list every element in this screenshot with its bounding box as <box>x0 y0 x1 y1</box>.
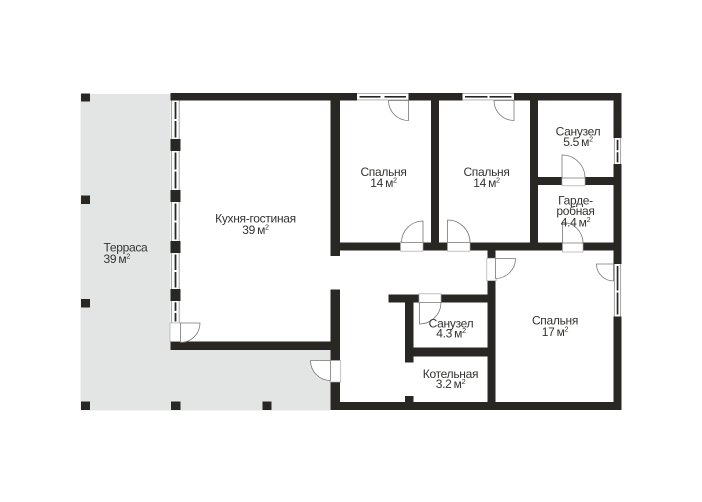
svg-text:14 м2: 14 м2 <box>473 176 500 190</box>
svg-text:39 м2: 39 м2 <box>242 223 269 237</box>
svg-text:3.2 м2: 3.2 м2 <box>436 377 466 391</box>
svg-text:39 м2: 39 м2 <box>104 252 131 266</box>
svg-text:14 м2: 14 м2 <box>370 176 397 190</box>
svg-text:4.4 м2: 4.4 м2 <box>561 215 591 229</box>
svg-text:4.3 м2: 4.3 м2 <box>436 326 466 340</box>
svg-text:5.5 м2: 5.5 м2 <box>563 135 593 149</box>
svg-text:17 м2: 17 м2 <box>542 325 569 339</box>
